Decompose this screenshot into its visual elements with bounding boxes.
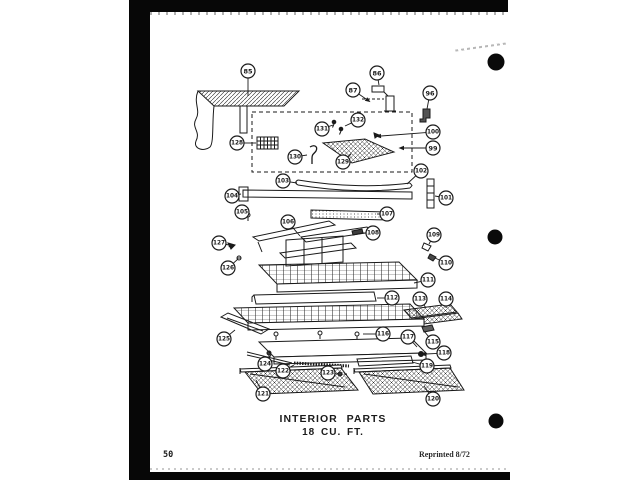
part-number-label: 114 xyxy=(440,297,452,303)
part-number-label: 106 xyxy=(282,220,294,226)
part-clip-110 xyxy=(428,254,436,261)
part-number-label: 112 xyxy=(386,296,398,302)
callout-86: 86 xyxy=(370,66,384,85)
callout-131: 131 xyxy=(315,122,333,136)
part-number-label: 96 xyxy=(425,90,435,98)
exploded-diagram-svg: 8586879613213110012899130129102103104101… xyxy=(0,0,640,480)
figure-title-line2: 18 CU. FT. xyxy=(248,426,418,439)
part-number-label: 105 xyxy=(236,210,248,216)
punch-dot-middle xyxy=(488,230,503,245)
callout-113: 113 xyxy=(413,292,427,308)
part-number-label: 121 xyxy=(257,392,269,398)
punch-dot-bottom xyxy=(489,414,504,429)
part-number-label: 131 xyxy=(316,127,328,133)
part-number-label: 101 xyxy=(440,196,452,202)
part-shelf-117 xyxy=(247,338,426,365)
part-bar-112 xyxy=(252,292,376,304)
part-number-label: 87 xyxy=(348,87,357,95)
part-number-label: 111 xyxy=(422,278,434,284)
part-number-label: 125 xyxy=(218,337,230,343)
callout-102: 102 xyxy=(407,164,428,184)
part-shelf-111 xyxy=(259,262,417,292)
callout-130: 130 xyxy=(288,150,307,164)
callout-108: 108 xyxy=(362,226,380,240)
callout-115: 115 xyxy=(424,331,440,349)
part-frame-106 xyxy=(253,221,372,266)
part-number-label: 116 xyxy=(377,332,389,338)
callout-110: 110 xyxy=(435,256,453,270)
part-number-label: 108 xyxy=(367,231,379,237)
part-number-label: 102 xyxy=(415,169,427,175)
part-screws-131-132 xyxy=(332,120,343,134)
part-number-label: 100 xyxy=(427,130,439,136)
part-hook-130 xyxy=(310,146,317,164)
callout-109: 109 xyxy=(427,228,441,244)
part-number-label: 86 xyxy=(372,70,382,78)
callout-105: 105 xyxy=(235,205,249,219)
callout-100: 100 xyxy=(375,125,440,139)
part-clip-109 xyxy=(422,243,431,251)
part-number-label: 127 xyxy=(213,241,225,247)
part-grille-128 xyxy=(257,137,278,149)
part-number-label: 120 xyxy=(427,397,439,403)
top-edge-bar xyxy=(129,0,508,12)
part-number-label: 115 xyxy=(427,340,439,346)
parts-artwork xyxy=(195,86,464,394)
part-number-label: 99 xyxy=(428,145,438,153)
part-number-label: 104 xyxy=(226,194,238,200)
callout-106: 106 xyxy=(281,215,300,236)
part-number-label: 110 xyxy=(440,261,452,267)
part-bar-101 xyxy=(427,179,434,208)
part-number-label: 122 xyxy=(277,369,289,375)
reprint-note: Reprinted 8/72 xyxy=(419,450,470,459)
callout-87: 87 xyxy=(346,83,372,104)
callout-112: 112 xyxy=(377,291,399,305)
callout-96: 96 xyxy=(423,86,437,109)
punch-dot-top xyxy=(488,54,505,71)
part-number-label: 118 xyxy=(438,351,450,357)
part-number-label: 124 xyxy=(259,362,271,368)
figure-title-line1: INTERIOR PARTS xyxy=(248,413,418,426)
callout-99: 99 xyxy=(399,141,441,155)
part-number-label: 107 xyxy=(381,212,393,218)
callout-arrow xyxy=(399,146,405,150)
part-number-label: 103 xyxy=(277,179,289,185)
part-number-label: 85 xyxy=(243,68,253,76)
part-shelf-120 xyxy=(354,365,464,394)
part-trim-103 xyxy=(296,180,412,191)
part-number-label: 123 xyxy=(322,371,334,377)
part-shelf-129 xyxy=(323,139,394,163)
page-number: 50 xyxy=(163,450,173,460)
callout-132: 132 xyxy=(345,113,365,127)
part-number-label: 128 xyxy=(231,141,243,147)
callout-129: 129 xyxy=(336,154,351,169)
callout-101: 101 xyxy=(435,191,453,205)
part-clip-96 xyxy=(420,109,430,122)
callout-125: 125 xyxy=(217,330,235,346)
part-bar-107 xyxy=(311,210,389,220)
callout-103: 103 xyxy=(276,174,297,188)
part-cabinet-hood xyxy=(195,91,299,149)
left-gutter-bar xyxy=(129,0,150,480)
part-number-label: 130 xyxy=(289,155,301,161)
part-number-label: 126 xyxy=(222,266,234,272)
part-clips-116 xyxy=(274,331,359,340)
part-number-label: 113 xyxy=(414,297,426,303)
callout-126: 126 xyxy=(221,259,238,275)
callout-124: 124 xyxy=(258,355,272,371)
figure-title: INTERIOR PARTS 18 CU. FT. xyxy=(248,413,418,439)
part-number-label: 109 xyxy=(428,233,440,239)
part-number-label: 117 xyxy=(402,335,414,341)
callout-arrow xyxy=(365,97,372,104)
bottom-edge-bar xyxy=(148,472,510,480)
scan-noise-bottom xyxy=(150,468,510,470)
part-number-label: 129 xyxy=(337,160,349,166)
scan-noise-top xyxy=(150,12,506,15)
part-number-label: 119 xyxy=(421,364,433,370)
scanned-catalog-page: 8586879613213110012899130129102103104101… xyxy=(0,0,640,480)
part-number-label: 132 xyxy=(352,118,364,124)
